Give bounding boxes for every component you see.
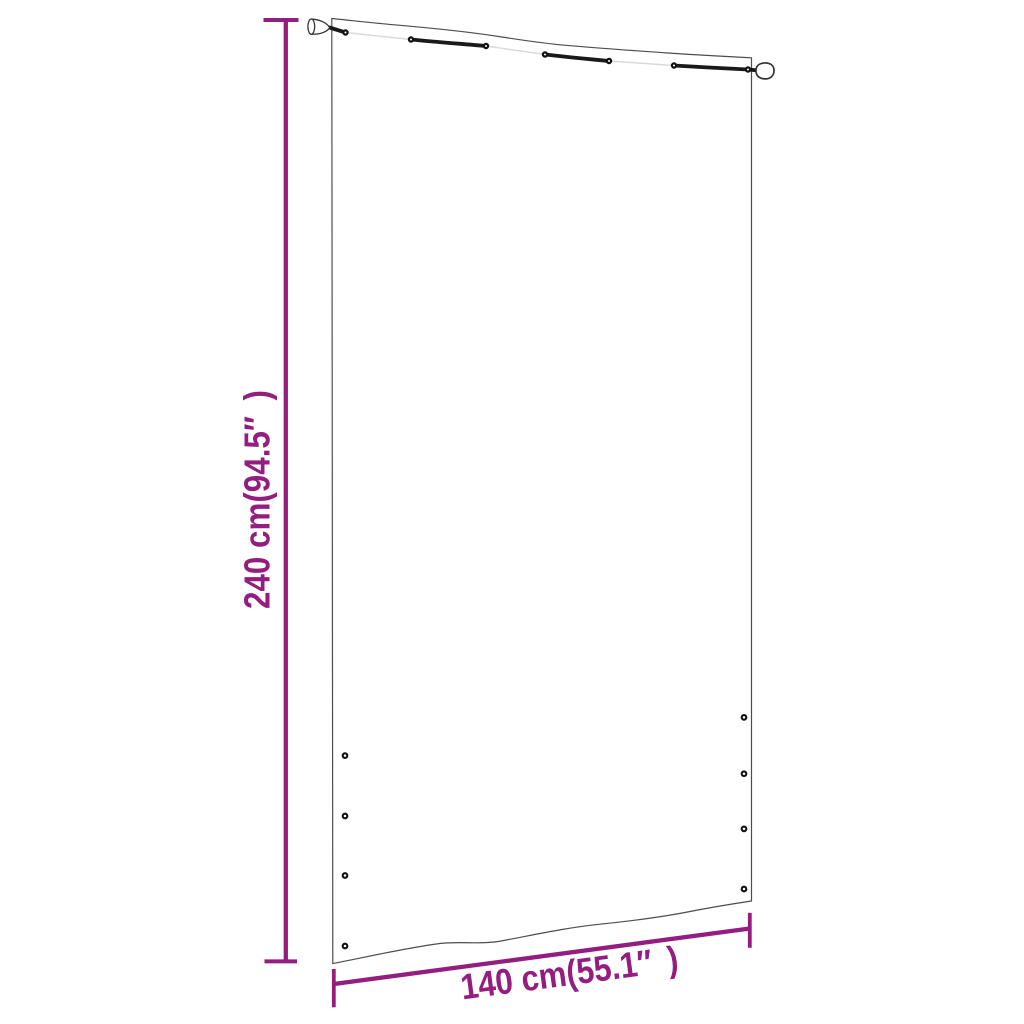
svg-text:240 cm(94.5″ ): 240 cm(94.5″ ) bbox=[237, 390, 278, 609]
